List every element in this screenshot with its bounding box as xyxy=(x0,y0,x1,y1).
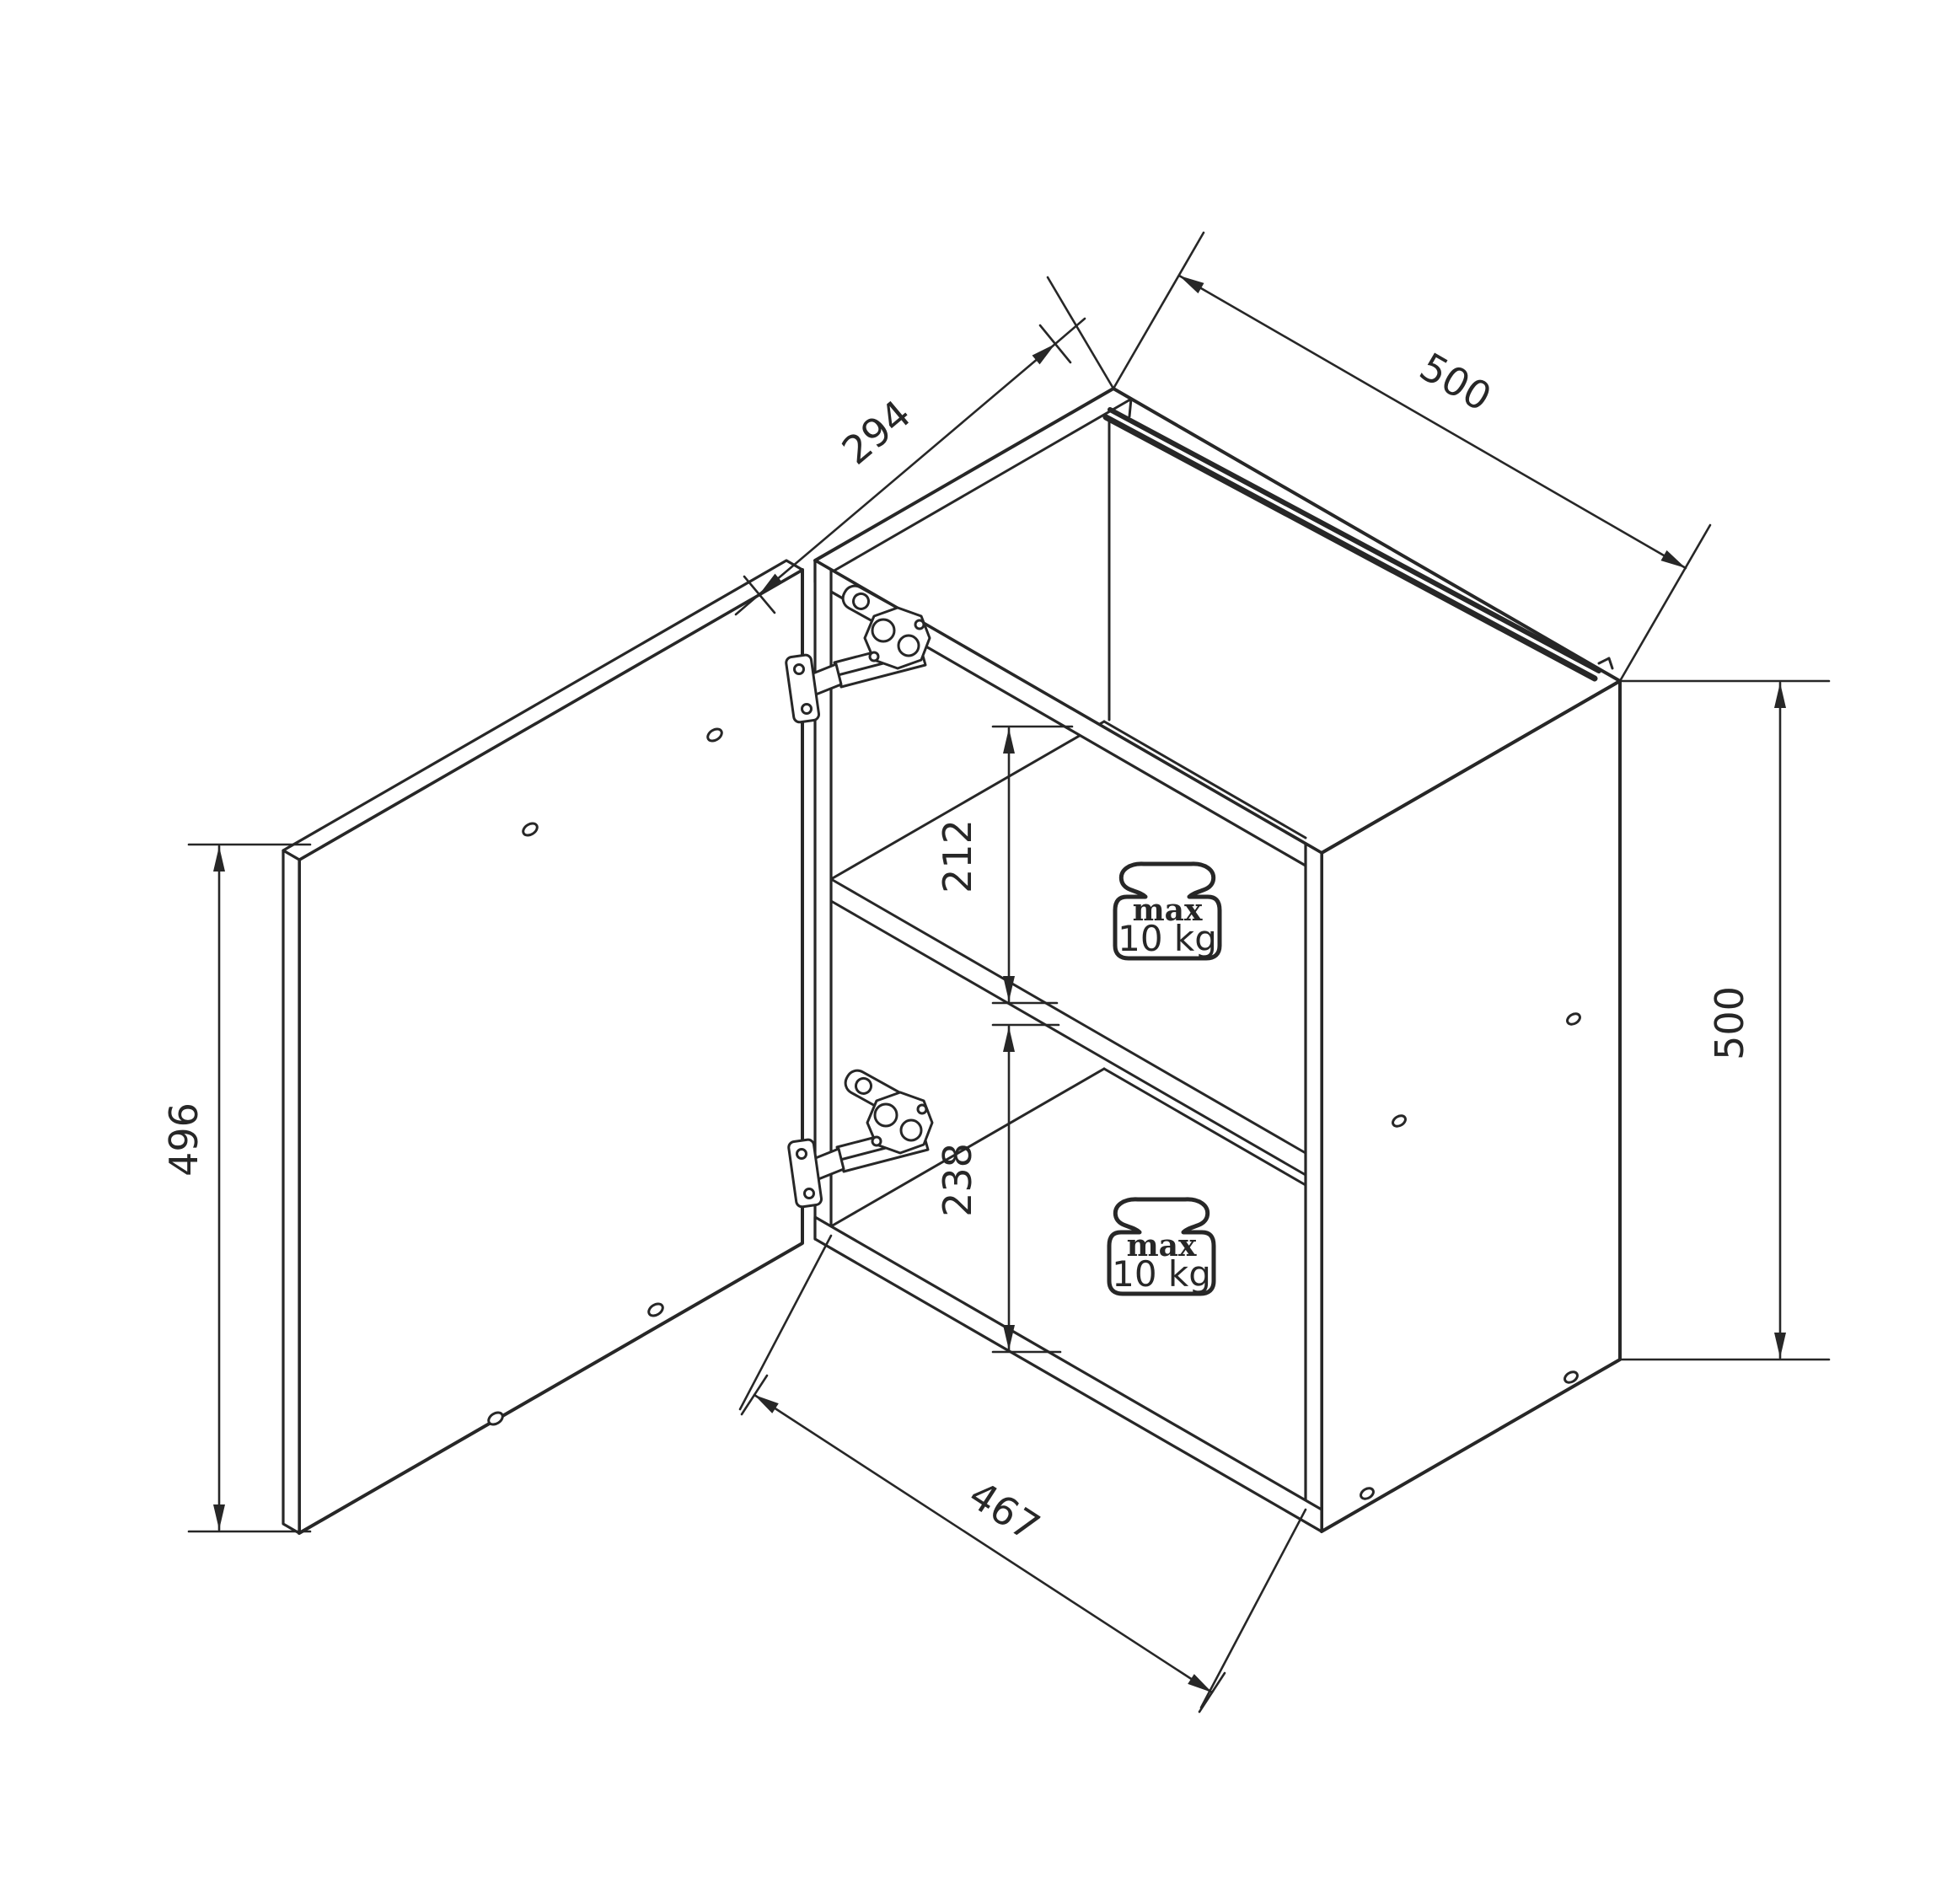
weight-kg-label: 10 kg xyxy=(1112,1253,1211,1295)
weight-kg-label: 10 kg xyxy=(1118,918,1217,959)
door-outer-edge xyxy=(283,850,299,1533)
hinge-bottom xyxy=(788,1067,932,1208)
weight-icon-upper: max 10 kg xyxy=(1115,864,1220,959)
dim-500-right-label: 500 xyxy=(1707,986,1752,1060)
right-front-edge xyxy=(1306,844,1322,1531)
dim-500-right: 500 xyxy=(1620,681,1829,1360)
dim-212-label: 212 xyxy=(935,819,980,893)
cabinet-technical-drawing: max 10 kg max 10 kg 294 500 496 xyxy=(0,0,1947,1904)
left-front-edge xyxy=(815,560,831,1239)
dim-500-top-label: 500 xyxy=(1412,344,1499,421)
dim-496-label: 496 xyxy=(161,1102,206,1177)
diagram-page: max 10 kg max 10 kg 294 500 496 xyxy=(0,0,1947,1904)
weight-icon-lower: max 10 kg xyxy=(1109,1199,1214,1295)
door-panel xyxy=(283,560,802,1533)
dim-238-label: 238 xyxy=(935,1143,980,1217)
cabinet-carcass xyxy=(815,389,1620,1531)
dim-212: 212 xyxy=(935,727,1072,1003)
dim-294-label: 294 xyxy=(834,391,920,474)
